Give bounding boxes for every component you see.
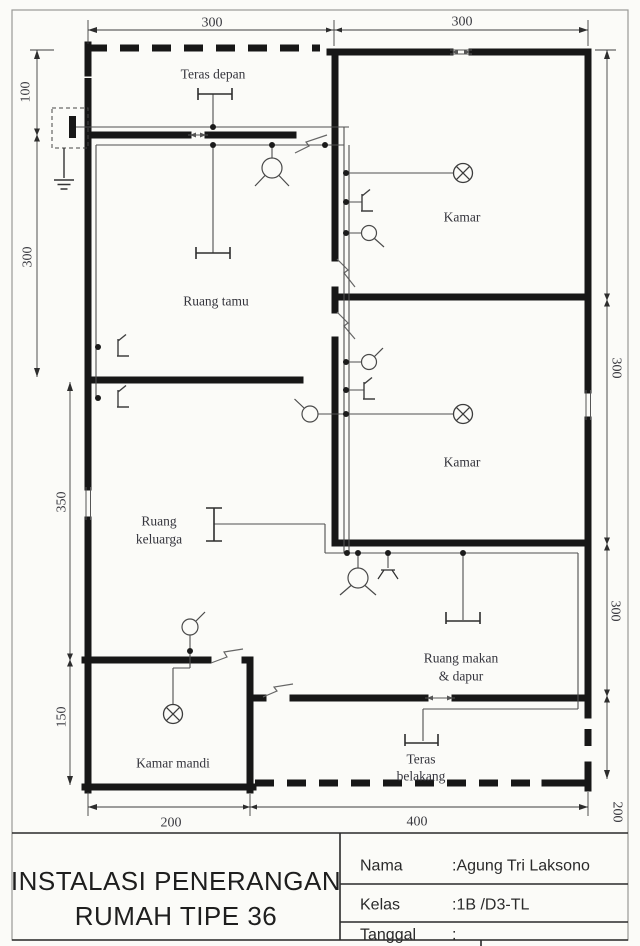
floor-plan-drawing: 300 300 100 300 350 150 300 300 200 200 … (0, 0, 640, 946)
kamar2-outlet-icon (363, 378, 375, 400)
dim-right-kamar2: 300 (609, 358, 624, 379)
kamar-mandi-lamp-icon (164, 705, 183, 724)
junction-dots (95, 124, 466, 654)
field-value-kelas: :1B /D3-TL (452, 897, 529, 914)
back-door-leaf (263, 684, 293, 697)
teras-door-pendant-lamp-icon (255, 158, 289, 186)
teras-belakang-lamp-icon (405, 734, 438, 746)
kamar-mandi-door-leaf (211, 649, 243, 663)
hall-switch-icon (295, 399, 319, 422)
sheet-title-line1: INSTALASI PENERANGAN (11, 866, 341, 896)
kamar2-lamp-icon (454, 405, 473, 424)
kamar1-lamp-icon (454, 164, 473, 183)
room-labels: Teras depan Kamar Ruang tamu Kamar Ruang… (136, 67, 499, 784)
kwh-panel (52, 108, 88, 189)
room-label-kamar-mandi: Kamar mandi (136, 756, 210, 771)
dim-left-kamar-mandi: 150 (55, 707, 70, 728)
dim-top-right: 300 (452, 15, 473, 30)
field-value-nama: :Agung Tri Laksono (452, 858, 590, 875)
dim-left-ruang-tamu: 300 (21, 247, 36, 268)
dim-left-ruang-keluarga: 350 (55, 492, 70, 513)
room-label-ruang-tamu: Ruang tamu (183, 294, 249, 309)
switch-icons (182, 226, 384, 636)
room-label-kamar-2: Kamar (444, 455, 481, 470)
room-label-ruang-keluarga-1: Ruang (141, 514, 176, 529)
drawing-sheet: 300 300 100 300 350 150 300 300 200 200 … (0, 0, 640, 946)
ruang-tamu-outlet-icon (117, 335, 129, 357)
panel-bar (69, 116, 76, 138)
field-label-tanggal: Tanggal (360, 927, 416, 944)
ruang-makan-pendant-lamp-icon (340, 568, 376, 595)
kamar2-switch-icon (362, 348, 384, 370)
title-block-fields: Nama :Agung Tri Laksono Kelas :1B /D3-TL… (360, 858, 590, 944)
room-label-ruang-keluarga-2: keluarga (136, 532, 182, 547)
dim-bottom-teras-belakang: 400 (407, 815, 428, 830)
wiring-lines (76, 94, 578, 741)
dim-right-ruang-makan: 300 (608, 601, 623, 622)
ruang-keluarga-outlet-icon (117, 386, 129, 408)
ground-icon (54, 148, 74, 189)
kamar1-outlet-icon (361, 190, 373, 212)
room-label-teras-belakang-1: Teras (406, 752, 435, 767)
title-block: INSTALASI PENERANGAN RUMAH TIPE 36 Nama … (11, 833, 628, 946)
kamar1-switch-icon (362, 226, 385, 248)
kamar-mandi-switch-icon (182, 612, 205, 635)
dim-left-teras: 100 (19, 82, 34, 103)
field-label-kelas: Kelas (360, 897, 400, 914)
opening-arrows (190, 50, 470, 701)
small-fixture-icon (378, 570, 398, 579)
room-label-ruang-makan-2: & dapur (439, 669, 484, 684)
dim-bottom-kamar-mandi: 200 (161, 816, 182, 831)
room-label-teras-depan: Teras depan (181, 67, 246, 82)
field-label-nama: Nama (360, 858, 403, 875)
field-value-tanggal: : (452, 927, 456, 944)
sheet-title-line2: RUMAH TIPE 36 (75, 901, 278, 931)
room-label-kamar-1: Kamar (444, 210, 481, 225)
room-label-ruang-makan-1: Ruang makan (424, 651, 499, 666)
walls-solid (85, 45, 588, 790)
kamar1-door-leaf (337, 259, 355, 287)
dim-top-left: 300 (202, 16, 223, 31)
page-border (12, 10, 628, 940)
room-label-teras-belakang-2: belakang (397, 769, 446, 784)
lamp-cross-icons (164, 164, 473, 724)
dim-right-teras-belakang: 200 (610, 802, 625, 823)
kamar2-door-leaf (337, 312, 355, 339)
teras-depan-lamp-icon (198, 88, 232, 100)
